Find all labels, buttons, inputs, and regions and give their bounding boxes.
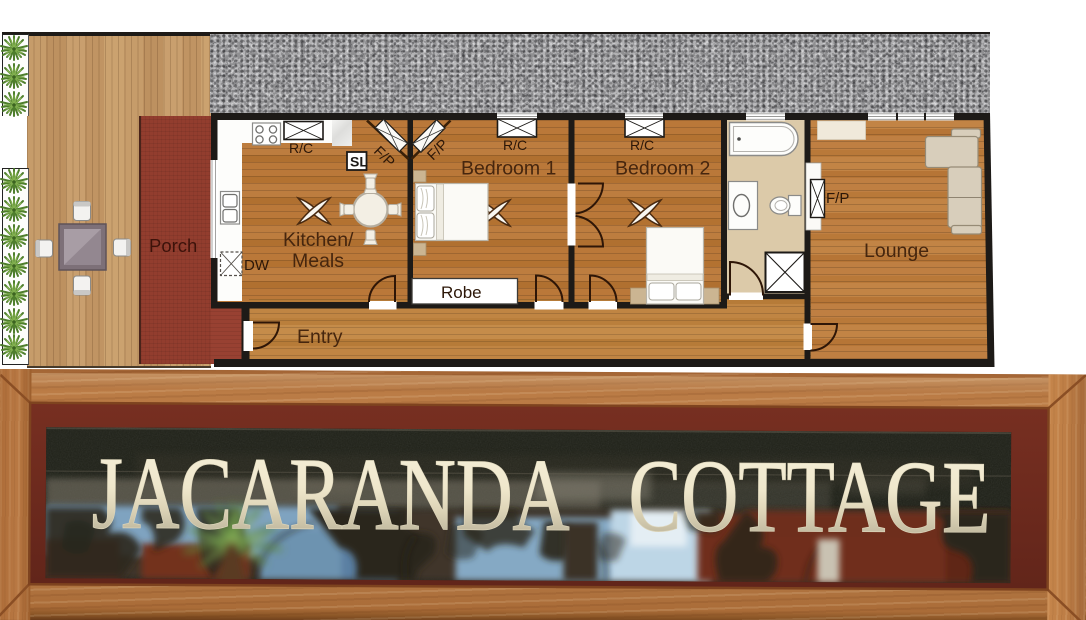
svg-text:Robe: Robe [441,283,482,302]
svg-text:R/C: R/C [289,140,313,156]
svg-text:JACARANDA COTTAGE: JACARANDA COTTAGE [92,435,991,554]
svg-text:Lounge: Lounge [864,240,929,262]
svg-text:R/C: R/C [630,137,654,153]
svg-text:Kitchen/: Kitchen/ [283,229,354,251]
svg-text:F/P: F/P [370,144,397,171]
svg-text:Bedroom 2: Bedroom 2 [615,158,710,180]
svg-text:R/C: R/C [503,137,527,153]
svg-text:Entry: Entry [297,326,343,348]
svg-text:Meals: Meals [292,250,344,272]
svg-text:DW: DW [244,257,270,274]
svg-text:Bedroom 1: Bedroom 1 [461,158,556,180]
svg-text:Porch: Porch [149,235,197,256]
svg-text:SL: SL [350,154,368,170]
svg-text:F/P: F/P [826,190,849,207]
